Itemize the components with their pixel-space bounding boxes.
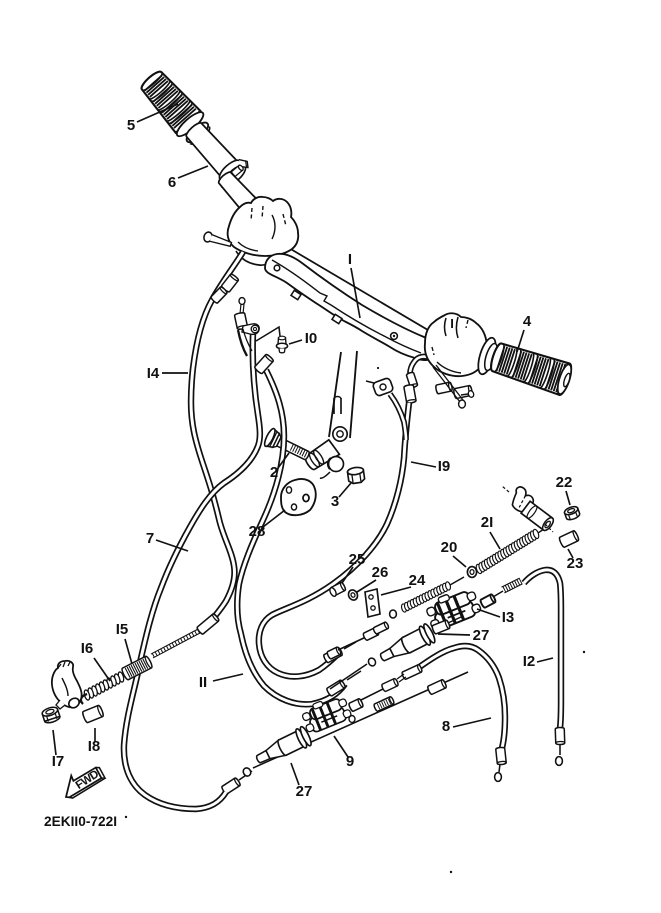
svg-text:9: 9 [346,753,354,770]
svg-text:5: 5 [127,117,135,134]
svg-text:23: 23 [567,555,584,572]
svg-text:24: 24 [409,572,426,589]
svg-text:25: 25 [349,551,366,568]
svg-text:I7: I7 [52,753,65,770]
svg-text:I9: I9 [438,458,451,475]
svg-text:I4: I4 [147,365,160,382]
svg-text:I: I [348,251,352,268]
svg-text:II: II [199,674,207,691]
svg-text:26: 26 [372,564,389,581]
svg-text:3: 3 [331,493,339,510]
svg-text:2EKII0-722I: 2EKII0-722I [44,813,117,829]
svg-text:22: 22 [556,474,573,491]
svg-text:27: 27 [473,627,490,644]
svg-text:20: 20 [441,539,458,556]
svg-text:2I: 2I [481,514,494,531]
svg-text:I6: I6 [81,640,94,657]
svg-text:2: 2 [270,464,278,481]
svg-text:I8: I8 [88,738,101,755]
svg-text:I5: I5 [116,621,129,638]
svg-text:I: I [450,316,454,331]
svg-text:8: 8 [442,718,450,735]
svg-text:I0: I0 [305,330,318,347]
svg-text:4: 4 [523,313,532,330]
svg-text:7: 7 [146,530,154,547]
svg-text:27: 27 [296,783,313,800]
svg-text:6: 6 [168,174,176,191]
svg-text:28: 28 [249,523,266,540]
svg-text:I3: I3 [502,609,515,626]
svg-text:I2: I2 [523,653,536,670]
